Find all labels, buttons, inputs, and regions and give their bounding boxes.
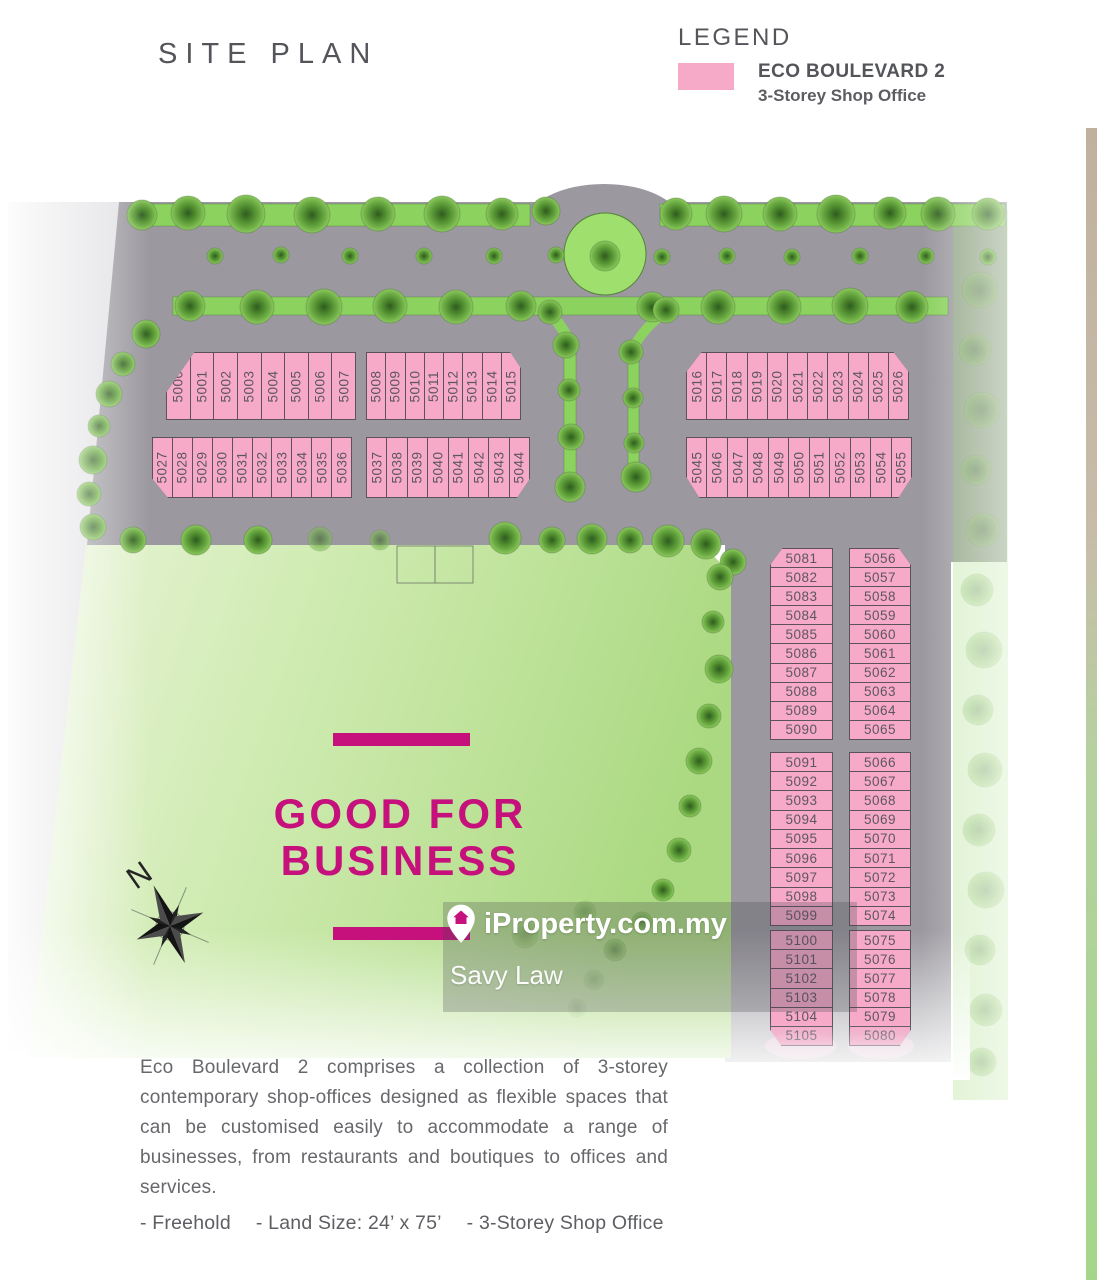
lot-cell: 5032: [253, 438, 272, 497]
lot-cell: 5091: [771, 753, 832, 771]
lot-block-5027-5036: 5027502850295030503150325033503450355036: [152, 437, 352, 498]
spec-item: - Freehold: [140, 1212, 231, 1235]
lot-cell: 5028: [173, 438, 192, 497]
lot-cell: 5020: [768, 353, 787, 419]
lot-column-5056-5065: 5056505750585059506050615062506350645065: [849, 548, 911, 740]
lot-cell: 5019: [748, 353, 767, 419]
compass-rose-icon: N: [118, 853, 228, 978]
lot-cell: 5040: [428, 438, 447, 497]
lot-cell: 5009: [386, 353, 404, 419]
lot-column-5075-5080: 507550765077507850795080: [849, 930, 911, 1046]
lot-cell: 5002: [214, 353, 237, 419]
lot-cell: 5034: [292, 438, 311, 497]
lot-cell: 5051: [810, 438, 829, 497]
legend-title: LEGEND: [678, 24, 945, 52]
lot-block-5008-5015: 50085009501050115012501350145015: [366, 352, 521, 420]
lot-cell: 5074: [850, 907, 910, 925]
lot-cell: 5041: [449, 438, 468, 497]
site-plan-flyer: .tree{fill:url(#tg);stroke:#3f6b2b;strok…: [0, 0, 1100, 1280]
lot-cell: 5105: [771, 1027, 832, 1045]
lot-cell: 5030: [213, 438, 232, 497]
legend-swatch: [678, 63, 734, 90]
lot-cell: 5008: [367, 353, 385, 419]
lot-cell: 5035: [312, 438, 331, 497]
lot-cell: 5086: [771, 644, 832, 662]
lot-column-5081-5090: 5081508250835084508550865087508850895090: [770, 548, 833, 740]
lot-cell: 5083: [771, 587, 832, 605]
legend-item-subtitle: 3-Storey Shop Office: [758, 86, 945, 106]
iproperty-pin-icon: [446, 904, 476, 944]
lot-cell: 5062: [850, 664, 910, 682]
lot-cell: 5010: [406, 353, 424, 419]
lot-cell: 5084: [771, 606, 832, 624]
lot-cell: 5037: [367, 438, 386, 497]
lot-cell: 5088: [771, 683, 832, 701]
lot-cell: 5097: [771, 868, 832, 886]
lot-cell: 5093: [771, 791, 832, 809]
legend-item-title: ECO BOULEVARD 2: [758, 61, 945, 83]
compass-north-label: N: [120, 854, 158, 896]
lot-cell: 5079: [850, 1008, 910, 1026]
lot-cell: 5023: [828, 353, 847, 419]
lot-cell: 5048: [748, 438, 767, 497]
lot-cell: 5064: [850, 702, 910, 720]
spec-item: - 3-Storey Shop Office: [467, 1212, 664, 1235]
lot-cell: 5006: [309, 353, 332, 419]
lot-cell: 5004: [262, 353, 285, 419]
lot-cell: 5046: [707, 438, 726, 497]
page-title: SITE PLAN: [158, 38, 378, 71]
lot-cell: 5029: [193, 438, 212, 497]
lot-cell: 5070: [850, 830, 910, 848]
lot-block-5037-5044: 50375038503950405041504250435044: [366, 437, 530, 498]
lot-cell: 5021: [788, 353, 807, 419]
lot-column-5066-5074: 506650675068506950705071507250735074: [849, 752, 911, 926]
lot-cell: 5082: [771, 568, 832, 586]
lot-cell: 5076: [850, 950, 910, 968]
lot-cell: 5014: [483, 353, 501, 419]
lot-cell: 5012: [444, 353, 462, 419]
lot-cell: 5025: [869, 353, 888, 419]
watermark: iProperty.com.my Savy Law: [446, 904, 727, 991]
spec-item: - Land Size: 24’ x 75’: [256, 1212, 442, 1235]
lot-cell: 5068: [850, 791, 910, 809]
lot-block-5000-5007: 50005001500250035004500550065007: [166, 352, 356, 420]
lot-cell: 5096: [771, 849, 832, 867]
tagline-line1: GOOD FOR: [245, 790, 555, 837]
watermark-agent: Savy Law: [450, 960, 727, 991]
lot-cell: 5087: [771, 664, 832, 682]
lot-cell: 5007: [332, 353, 355, 419]
lot-cell: 5089: [771, 702, 832, 720]
roundabout: [564, 213, 646, 295]
project-description: Eco Boulevard 2 comprises a collection o…: [140, 1053, 668, 1203]
lot-cell: 5080: [850, 1027, 910, 1045]
lot-cell: 5073: [850, 888, 910, 906]
lot-cell: 5072: [850, 868, 910, 886]
lot-cell: 5024: [849, 353, 868, 419]
lot-cell: 5047: [728, 438, 747, 497]
lot-cell: 5060: [850, 625, 910, 643]
lot-cell: 5058: [850, 587, 910, 605]
lot-cell: 5092: [771, 772, 832, 790]
lot-cell: 5015: [502, 353, 520, 419]
lot-cell: 5071: [850, 849, 910, 867]
lot-cell: 5053: [851, 438, 870, 497]
lot-cell: 5031: [233, 438, 252, 497]
lot-cell: 5049: [769, 438, 788, 497]
lot-column-5091-5099: 509150925093509450955096509750985099: [770, 752, 833, 926]
lot-cell: 5003: [238, 353, 261, 419]
lot-cell: 5067: [850, 772, 910, 790]
lot-cell: 5059: [850, 606, 910, 624]
lot-cell: 5038: [387, 438, 406, 497]
lot-cell: 5022: [808, 353, 827, 419]
lot-cell: 5039: [408, 438, 427, 497]
lot-cell: 5017: [707, 353, 726, 419]
lot-cell: 5075: [850, 931, 910, 949]
plot-boundary-band: [1086, 128, 1097, 1280]
lot-cell: 5085: [771, 625, 832, 643]
tagline: GOOD FOR BUSINESS: [245, 790, 555, 884]
lot-cell: 5065: [850, 721, 910, 739]
lot-cell: 5061: [850, 644, 910, 662]
lot-cell: 5001: [191, 353, 214, 419]
lot-cell: 5077: [850, 969, 910, 987]
legend: LEGEND ECO BOULEVARD 2 3-Storey Shop Off…: [678, 24, 945, 106]
lot-cell: 5081: [771, 549, 832, 567]
lot-cell: 5043: [489, 438, 508, 497]
lot-cell: 5054: [871, 438, 890, 497]
lot-cell: 5052: [830, 438, 849, 497]
watermark-brand: iProperty.com.my: [484, 908, 727, 941]
lot-cell: 5011: [425, 353, 443, 419]
lot-cell: 5018: [727, 353, 746, 419]
lot-cell: 5005: [285, 353, 308, 419]
lot-cell: 5050: [789, 438, 808, 497]
lot-block-5016-5026: 5016501750185019502050215022502350245025…: [686, 352, 909, 420]
lot-cell: 5078: [850, 989, 910, 1007]
lot-cell: 5057: [850, 568, 910, 586]
tagline-top-bar: [333, 733, 470, 746]
lot-cell: 5013: [463, 353, 481, 419]
tagline-line2: BUSINESS: [245, 837, 555, 884]
lot-cell: 5033: [272, 438, 291, 497]
lot-cell: 5094: [771, 811, 832, 829]
lot-cell: 5042: [469, 438, 488, 497]
lot-cell: 5095: [771, 830, 832, 848]
lot-cell: 5090: [771, 721, 832, 739]
lot-cell: 5063: [850, 683, 910, 701]
lot-block-5045-5055: 5045504650475048504950505051505250535054…: [686, 437, 912, 498]
lot-cell: 5066: [850, 753, 910, 771]
spec-list: - Freehold- Land Size: 24’ x 75’- 3-Stor…: [140, 1212, 664, 1235]
lot-cell: 5036: [332, 438, 351, 497]
lot-cell: 5069: [850, 811, 910, 829]
lot-cell: 5056: [850, 549, 910, 567]
